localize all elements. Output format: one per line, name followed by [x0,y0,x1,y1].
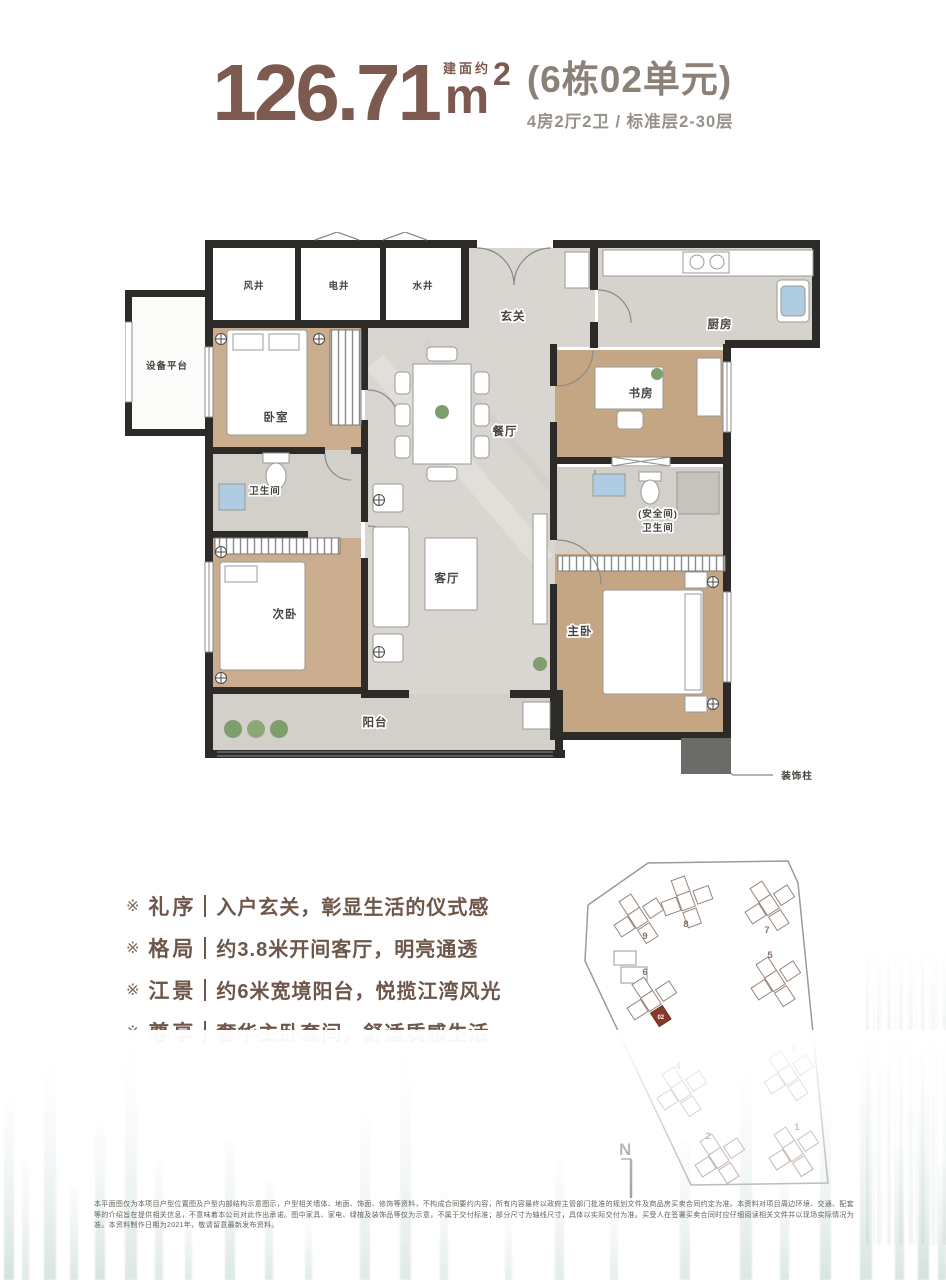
feature-item: ※ 礼序 入户玄关，彰显生活的仪式感 [126,891,502,920]
decor-column-block [681,738,731,774]
building-number: 9 [642,931,647,942]
room-label-wind-shaft: 风井 [243,280,264,292]
area-superscript: 2 [493,58,511,90]
building-number: 8 [683,919,688,930]
building-unit-name: (6栋02单元) [527,60,732,101]
building-number: 2 [705,1131,710,1142]
feature-divider [204,937,206,959]
feature-desc: 约6米宽境阳台，悦揽江湾风光 [216,975,501,1004]
building-number: 3 [790,1043,795,1054]
site-plan: 9 8 7 5 02 6 4 3 2 1 N [551,853,943,1213]
feature-desc: 约3.8米开间客厅，明亮通透 [216,933,478,962]
room-label-safe-room: (安全间) [638,508,678,520]
area-unit: m [445,75,489,118]
north-compass-icon: N [619,1140,631,1198]
feature-tag: 格局 [148,933,196,963]
room-label-bedroom: 卧室 [264,410,289,424]
feature-desc: 奢华主卧套间，舒适质感生活 [216,1017,489,1046]
reference-mark-icon: ※ [126,1022,139,1042]
feature-desc: 入户玄关，彰显生活的仪式感 [216,891,489,920]
room-label-safe-bath: 卫生间 [642,522,674,534]
feature-divider [204,979,206,1001]
room-label-water-shaft: 水井 [412,280,433,292]
reference-mark-icon: ※ [126,938,139,958]
reference-mark-icon: ※ [126,980,139,1000]
feature-item: ※ 格局 约3.8米开间客厅，明亮通透 [126,933,502,962]
room-label-second-bedroom: 次卧 [273,607,298,621]
entry-opening [477,240,553,248]
room-label-kitchen: 厨房 [708,317,733,331]
room-label-equipment-platform: 设备平台 [146,360,188,372]
building-number: 7 [764,925,769,936]
room-label-study: 书房 [629,386,654,400]
building-number: 4 [675,1061,681,1072]
room-label-master-bedroom: 主卧 [568,624,593,638]
feature-tag: 尊享 [148,1017,196,1047]
feature-tag: 礼序 [148,891,196,921]
feature-item: ※ 尊享 奢华主卧套间，舒适质感生活 [126,1017,502,1046]
room-label-foyer: 玄关 [501,309,526,323]
unit-block: (6栋02单元) 4房2厅2卫 / 标准层2-30层 [527,60,734,132]
room-label-bath: 卫生间 [249,485,281,497]
feature-item: ※ 江景 约6米宽境阳台，悦揽江湾风光 [126,975,502,1004]
highlighted-unit-number: 02 [657,1015,664,1021]
room-label-elec-shaft: 电井 [328,280,349,292]
feature-divider [204,1021,206,1043]
room-label-balcony: 阳台 [363,715,388,729]
area-value: 126.71 [212,56,439,130]
site-plan-svg: 9 8 7 5 02 6 4 3 2 1 N [551,853,943,1208]
room-label-dining: 餐厅 [492,424,518,438]
building-number: 6 [642,967,647,978]
building-number: 1 [794,1122,800,1133]
plan-header: 126.71 建面约 m 2 (6栋02单元) 4房2厅2卫 / 标准层2-30… [0,56,946,132]
room-label-living: 客厅 [434,571,460,585]
feature-divider [204,895,206,917]
area-unit-column: 建面约 m [443,56,491,118]
room-label-decor-column: 装饰柱 [780,770,813,782]
feature-list: ※ 礼序 入户玄关，彰显生活的仪式感 ※ 格局 约3.8米开间客厅，明亮通透 ※… [126,891,502,1059]
building-number: 5 [767,950,773,961]
floor-plan: 风井 电井 水井 玄关 厨房 设备平台 卧室 餐厅 书房 卫生间 客厅 次卧 (… [125,232,840,797]
disclaimer-text: 本平面图仅为本项目户型位置图及户型内部结构示意图示，户型相关墙体、地面、饰面、修… [94,1200,854,1232]
floor-plan-svg: 风井 电井 水井 玄关 厨房 设备平台 卧室 餐厅 书房 卫生间 客厅 次卧 (… [125,232,840,797]
layout-spec: 4房2厅2卫 / 标准层2-30层 [527,108,734,132]
feature-tag: 江景 [148,975,196,1005]
reference-mark-icon: ※ [126,896,139,916]
compass-label: N [619,1140,631,1159]
area-figure: 126.71 建面约 m 2 [212,56,511,130]
